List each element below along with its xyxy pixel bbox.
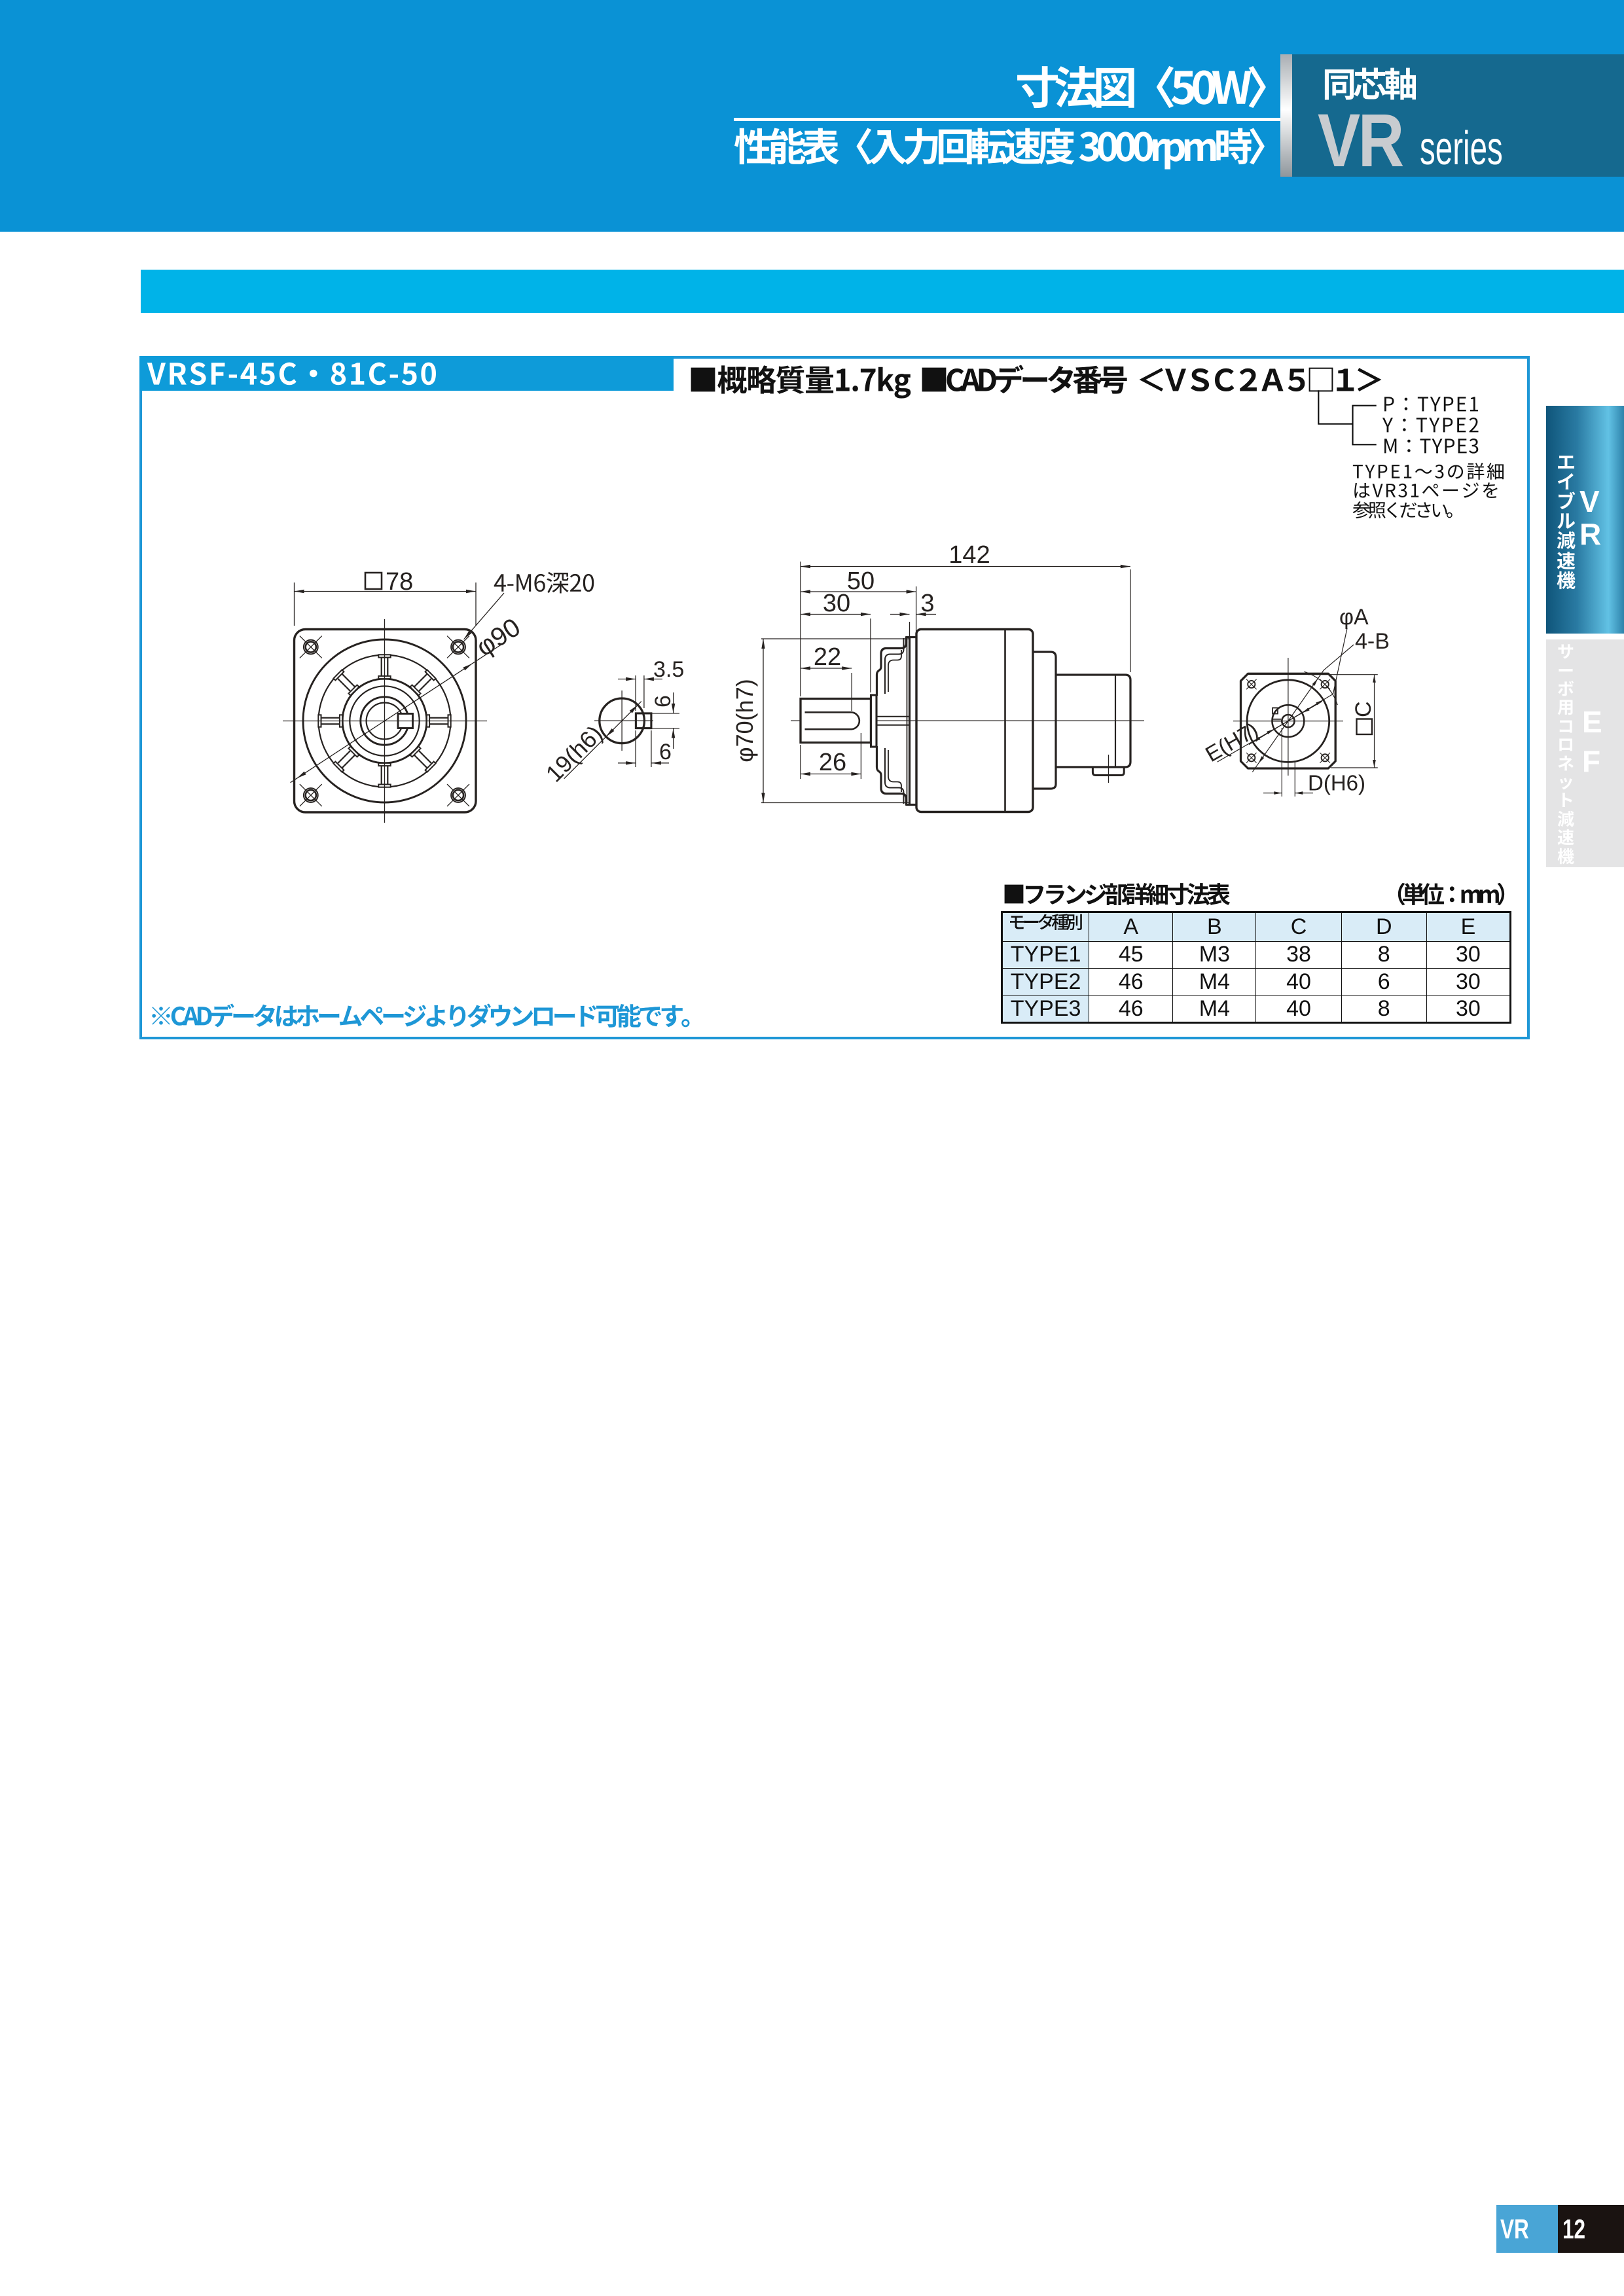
svg-text:26: 26 [819,749,846,776]
svg-text:4-B: 4-B [1355,629,1390,654]
svg-text:78: 78 [386,568,413,596]
svg-text:6: 6 [651,695,676,708]
svg-text:3.5: 3.5 [653,657,684,682]
svg-text:D(H6): D(H6) [1308,771,1365,795]
svg-text:50: 50 [847,567,875,595]
svg-text:C: C [1351,701,1376,717]
svg-text:22: 22 [814,643,841,671]
svg-text:φ90: φ90 [471,613,526,662]
svg-text:30: 30 [823,590,850,617]
svg-text:φ70(h7): φ70(h7) [731,679,758,762]
svg-text:3: 3 [920,590,934,617]
svg-text:6: 6 [659,740,672,764]
svg-text:φA: φA [1339,605,1369,630]
svg-text:142: 142 [948,541,990,569]
svg-text:19(h6): 19(h6) [541,720,608,787]
